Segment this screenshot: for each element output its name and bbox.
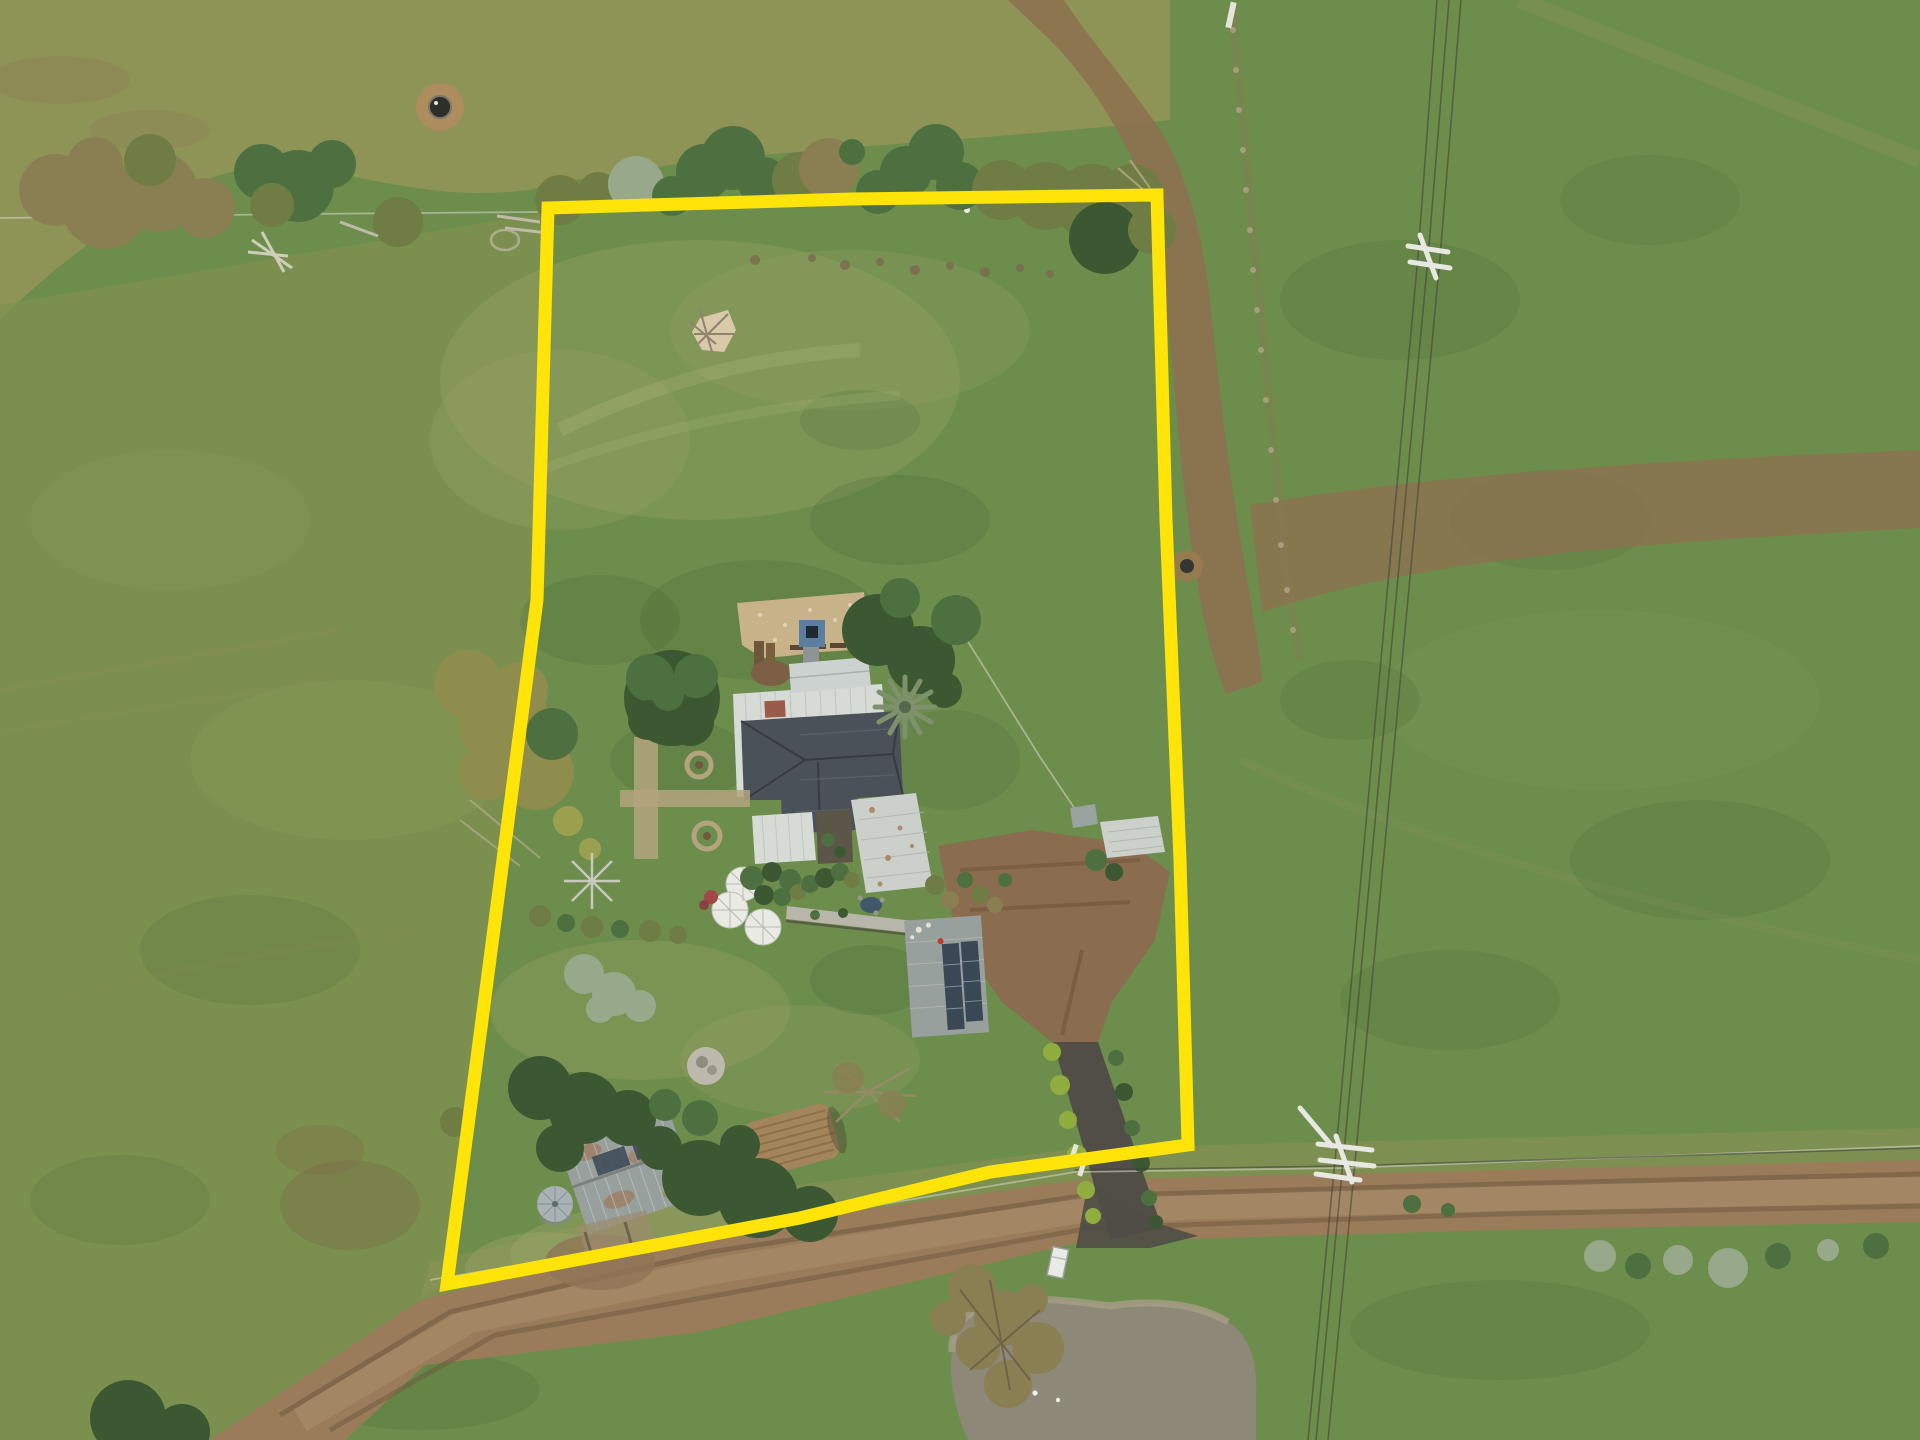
blue-tank-stand-hole (806, 626, 818, 638)
garden-path-horizontal (620, 790, 750, 807)
silver-tussock (564, 853, 620, 909)
veranda-shadow (816, 809, 853, 864)
garden-ring-bed-a-center (695, 761, 703, 769)
screenshot-root (0, 0, 1920, 1440)
solar-shed (904, 915, 989, 1037)
south-skillion-roof (752, 812, 816, 864)
fire-pit-ash (687, 1047, 725, 1085)
big-tree-west-of-house (624, 650, 720, 746)
courtyard-dirt-patch (751, 660, 791, 686)
skylight-red (764, 699, 787, 718)
water-trough-top-left (416, 83, 464, 131)
small-hut-roof (1070, 804, 1098, 828)
garden-pond (860, 897, 882, 913)
aerial-photo (0, 0, 1920, 1440)
garden-ring-bed-b-center (703, 832, 711, 840)
water-trough-right-field (1171, 550, 1203, 582)
water-tank (537, 1186, 573, 1224)
